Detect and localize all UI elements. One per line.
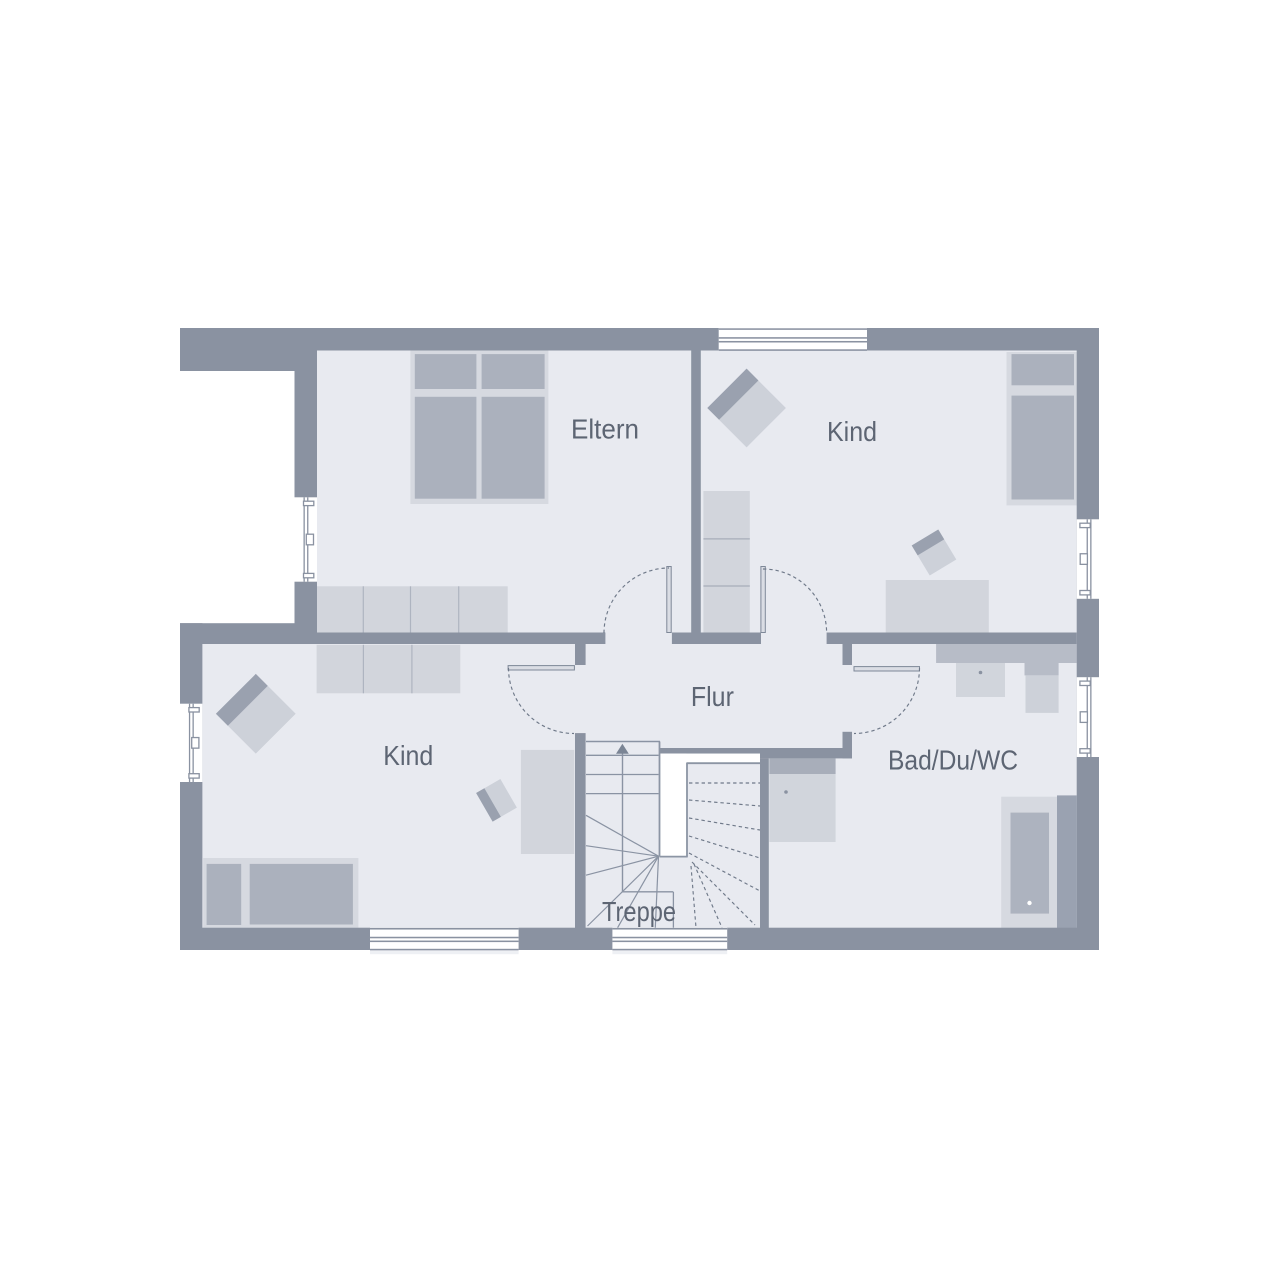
svg-text:Bad/Du/WC: Bad/Du/WC — [888, 745, 1018, 776]
svg-text:Flur: Flur — [691, 681, 734, 712]
svg-text:Treppe: Treppe — [602, 896, 676, 927]
svg-text:Eltern: Eltern — [571, 413, 639, 444]
svg-text:Kind: Kind — [383, 740, 433, 771]
svg-text:Kind: Kind — [827, 416, 877, 447]
